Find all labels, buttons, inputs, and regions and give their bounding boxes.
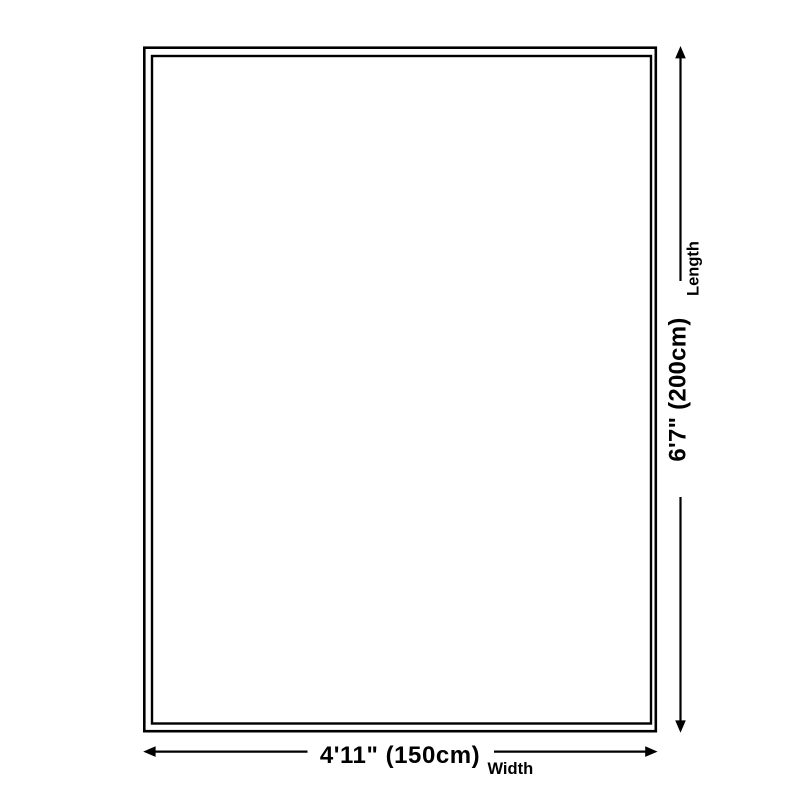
svg-text:Length: Length xyxy=(685,241,703,296)
svg-text:Width: Width xyxy=(488,760,534,778)
svg-text:4'11" (150cm): 4'11" (150cm) xyxy=(320,742,480,769)
svg-text:6'7" (200cm): 6'7" (200cm) xyxy=(665,317,692,461)
